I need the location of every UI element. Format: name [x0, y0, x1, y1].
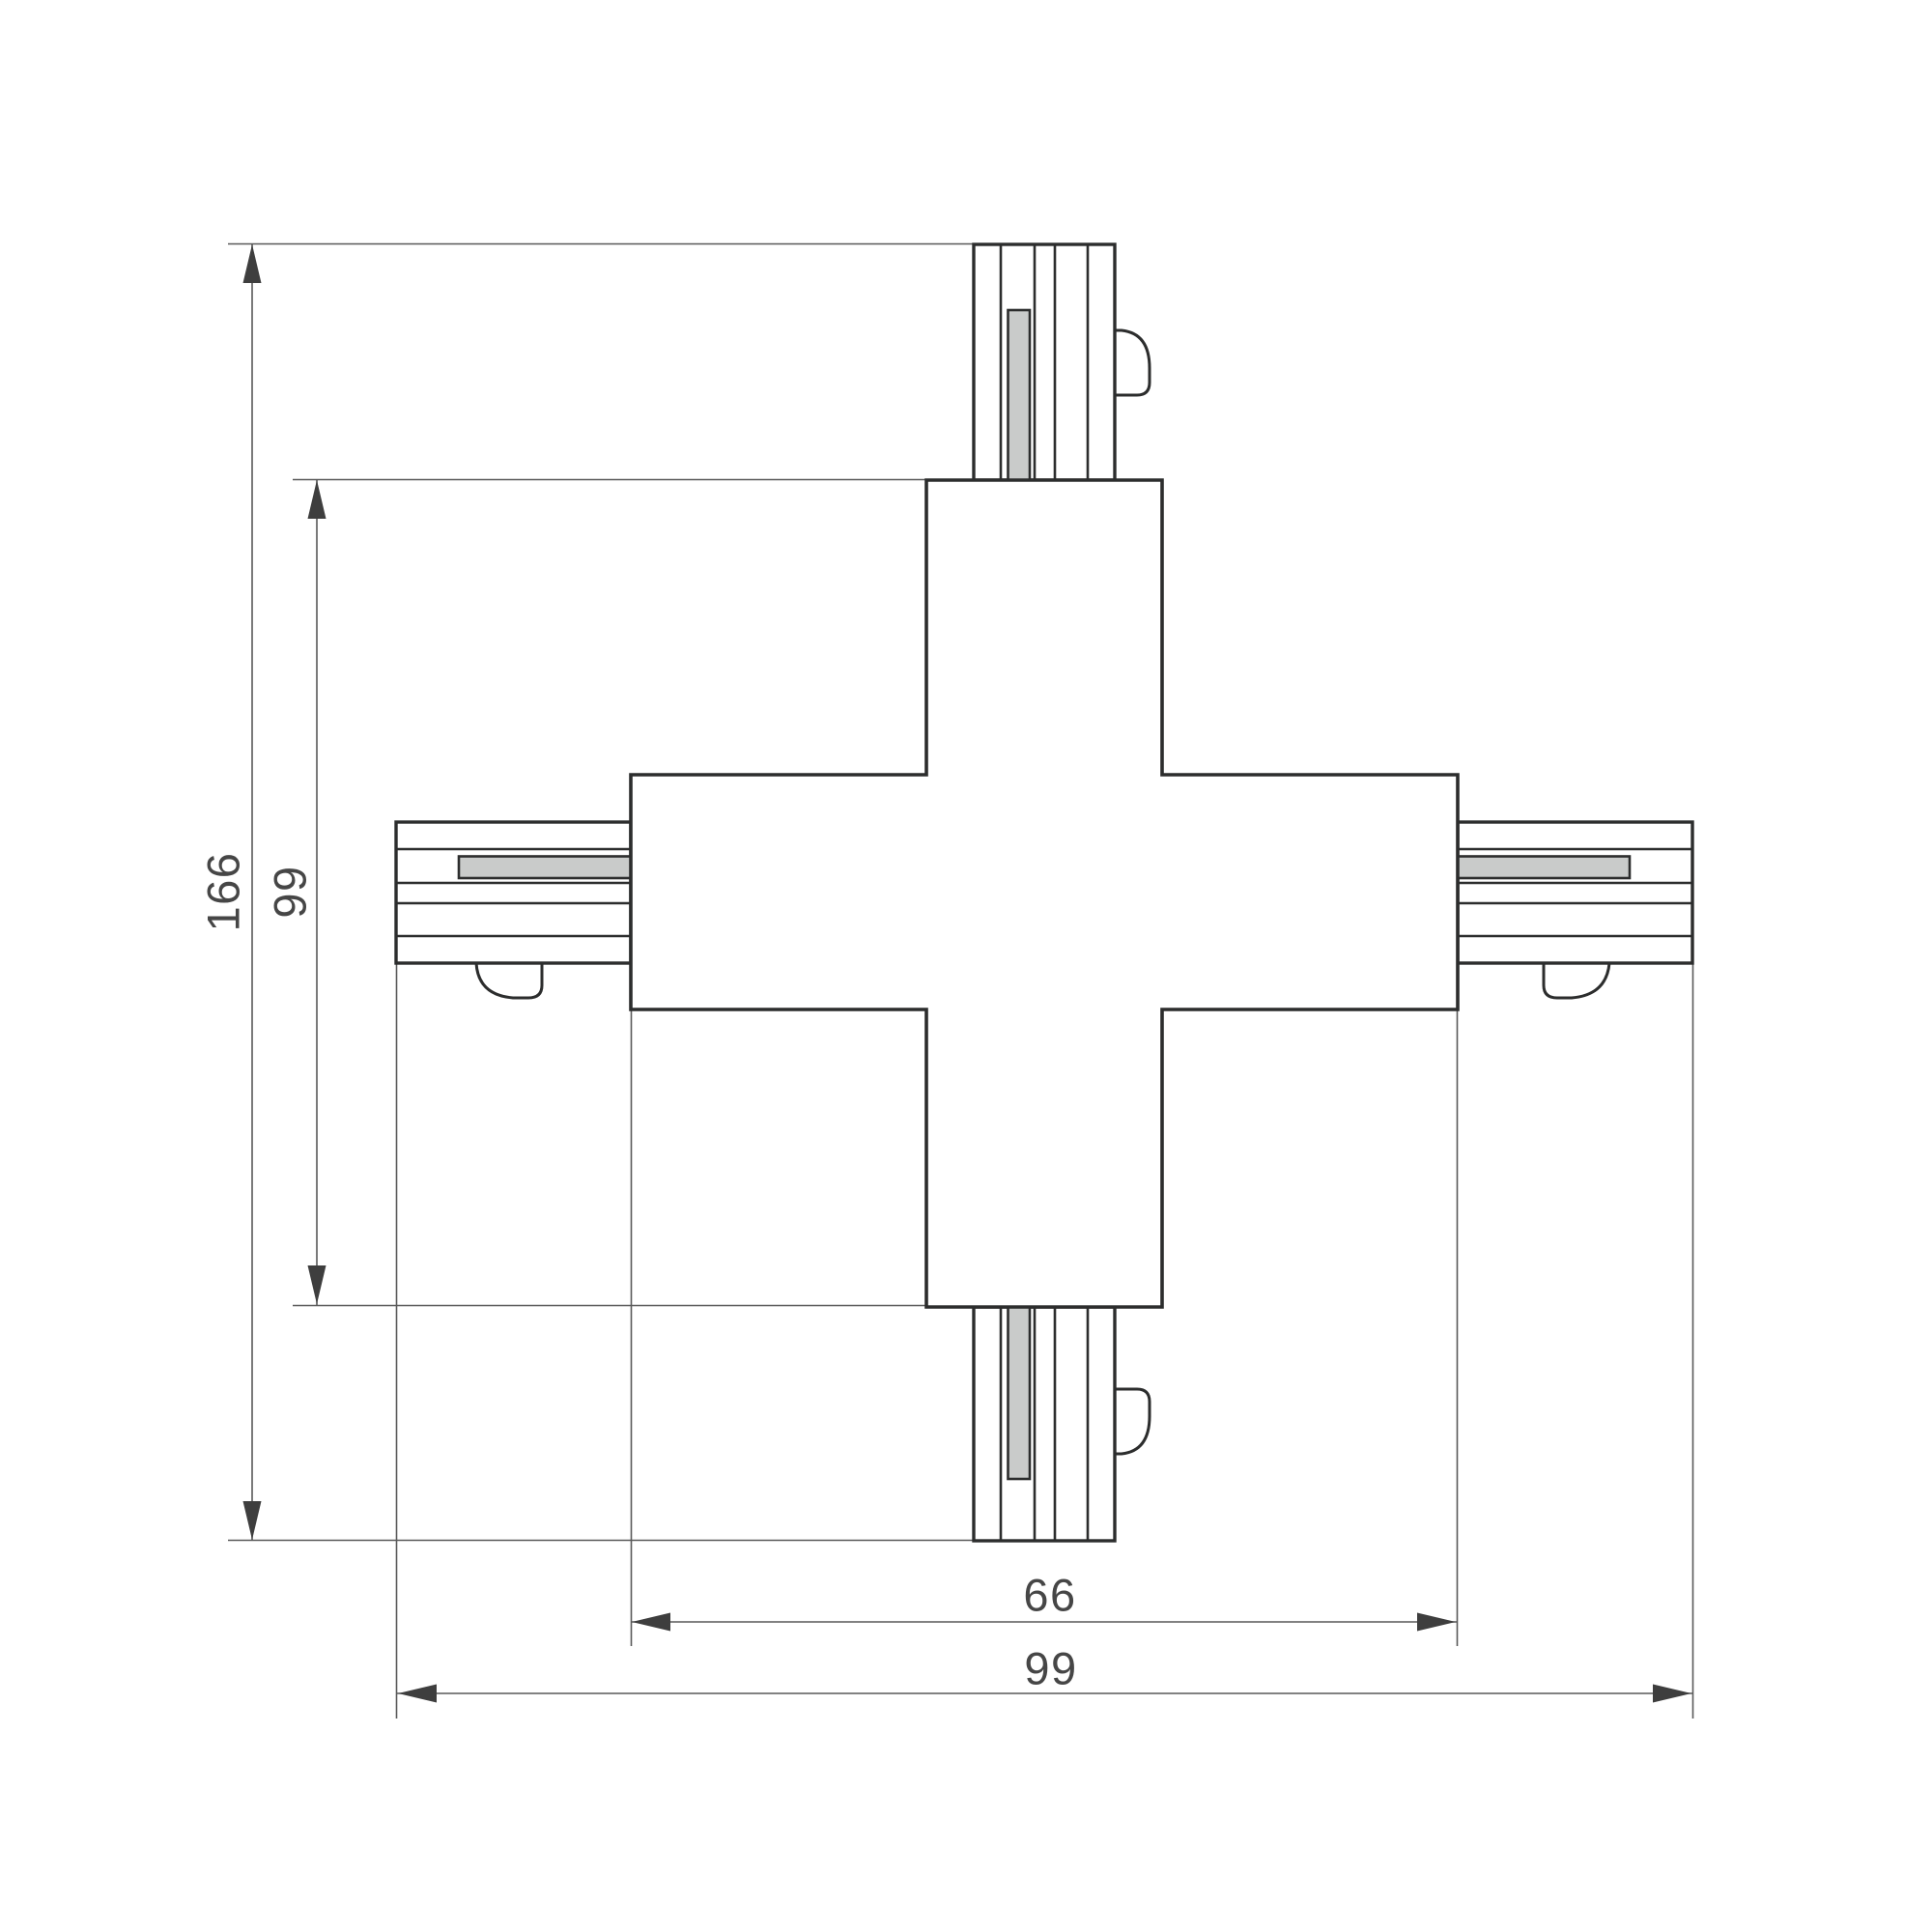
track-section-top [974, 244, 1150, 480]
arrow-down-overall [243, 1501, 262, 1540]
conductor-strip-top [1009, 310, 1031, 480]
arrow-up-overall [243, 244, 262, 283]
dim-label-overall-vertical: 166 [198, 852, 249, 932]
arrow-left-overall [398, 1685, 437, 1703]
technical-drawing-canvas: 166 99 66 99 [0, 0, 1932, 1932]
track-section-bottom [974, 1307, 1150, 1541]
arrow-left-body [632, 1613, 670, 1632]
connector-drawing: 166 99 66 99 [0, 0, 1932, 1932]
track-section-right [1458, 822, 1692, 998]
dim-label-body-vertical: 99 [265, 865, 316, 918]
dim-label-body-horizontal: 66 [1023, 1570, 1076, 1621]
arrow-right-overall [1653, 1685, 1691, 1703]
arrow-down-body [308, 1265, 327, 1304]
connector-cross-body [631, 480, 1458, 1307]
arrow-right-body [1417, 1613, 1456, 1632]
latch-tab-right [1544, 963, 1609, 998]
latch-tab-bottom [1114, 1389, 1150, 1454]
track-section-left [396, 822, 631, 998]
track-body-top [974, 244, 1115, 480]
track-body-bottom [974, 1307, 1115, 1541]
track-body-left [396, 822, 631, 963]
latch-tab-top [1114, 330, 1150, 395]
conductor-strip-right [1458, 857, 1630, 879]
conductor-strip-left [459, 857, 631, 879]
track-body-right [1458, 822, 1692, 963]
dim-label-overall-horizontal: 99 [1024, 1643, 1077, 1694]
conductor-strip-bottom [1009, 1307, 1031, 1479]
latch-tab-left [476, 963, 542, 998]
arrow-up-body [308, 480, 327, 519]
